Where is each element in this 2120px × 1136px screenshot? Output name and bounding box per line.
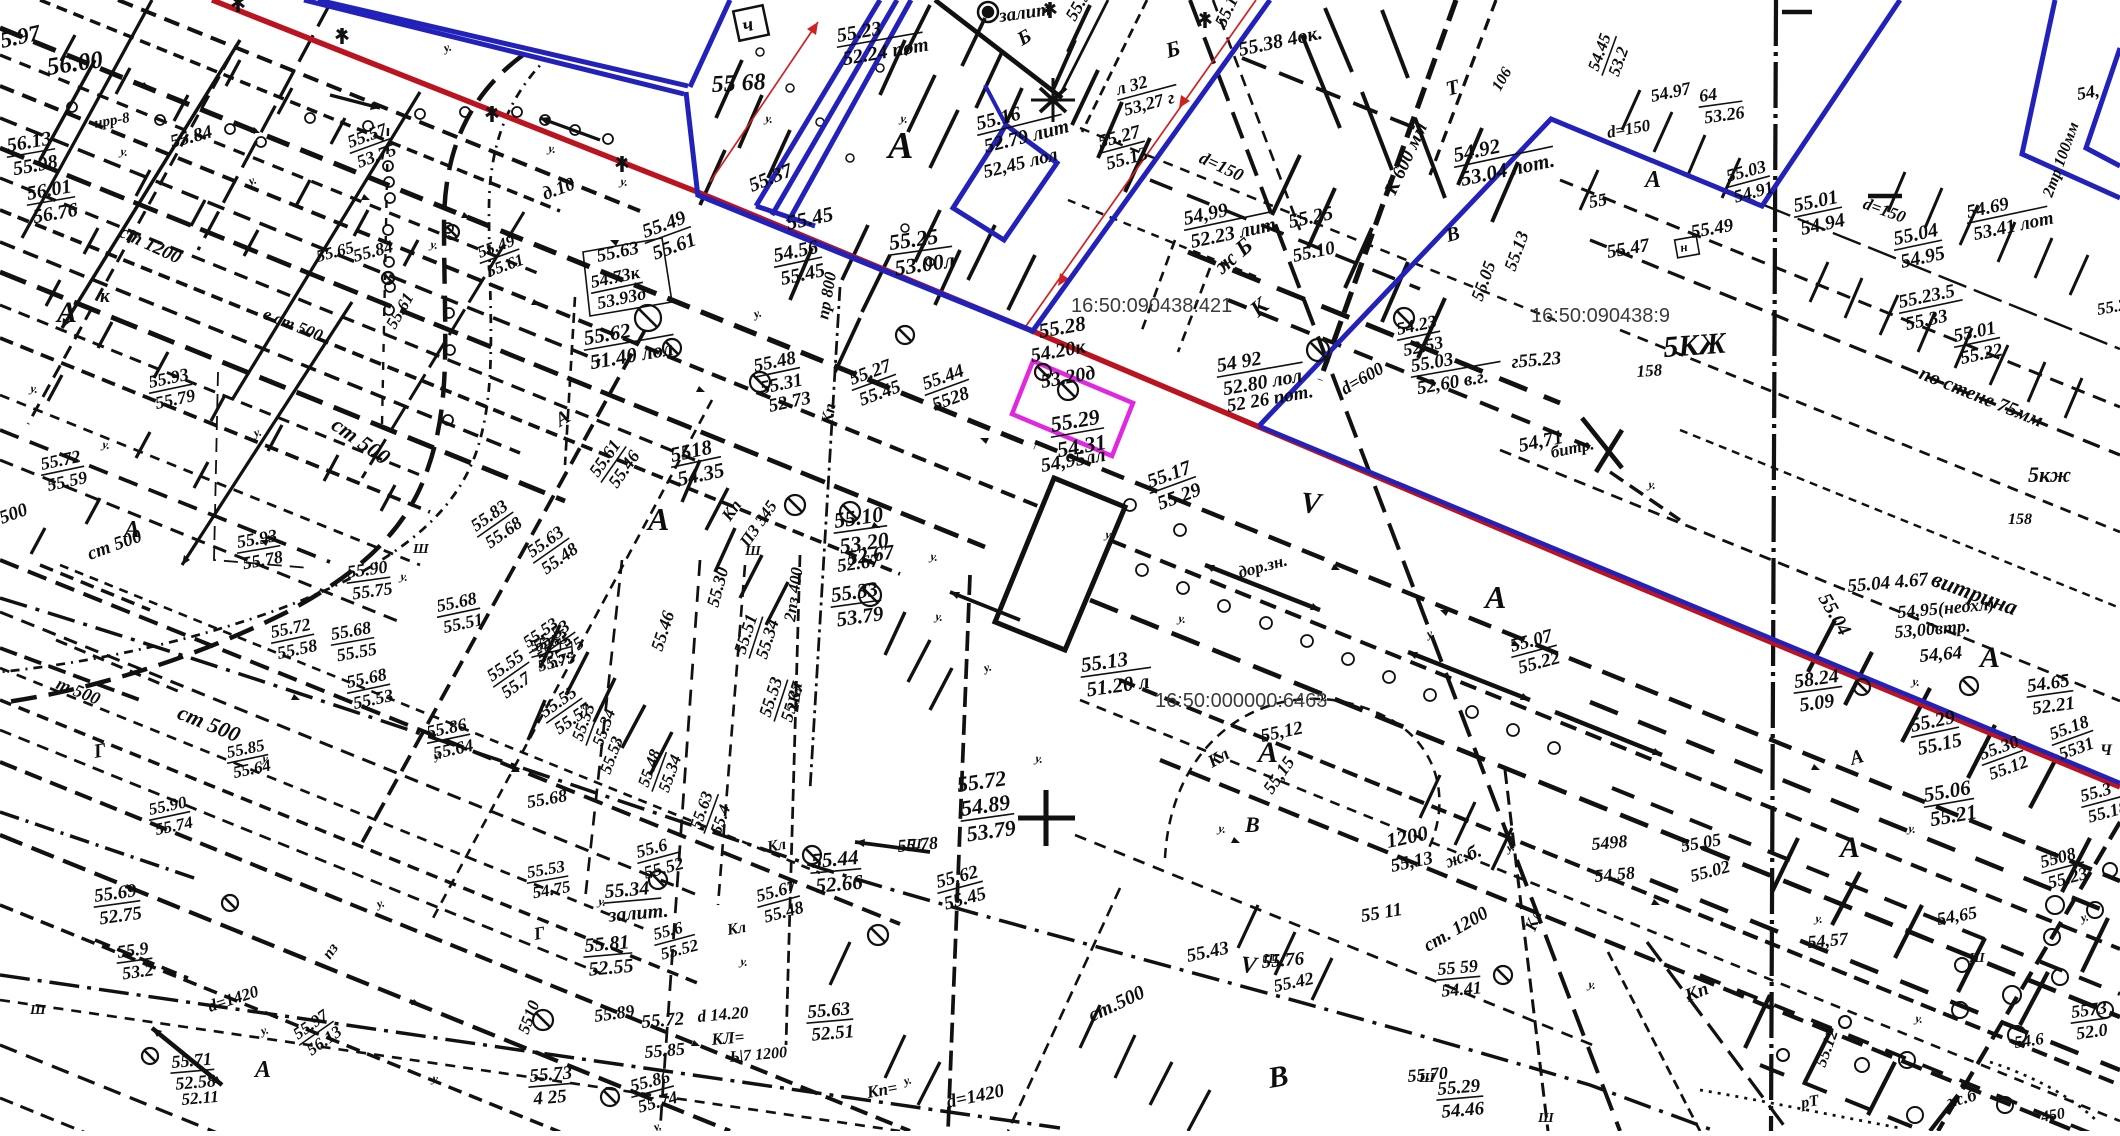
svg-text:А: А — [1643, 167, 1661, 193]
svg-text:54.41: 54.41 — [1441, 977, 1483, 1000]
svg-text:А: А — [1483, 579, 1506, 615]
svg-text:Ш: Ш — [905, 837, 923, 852]
svg-text:Кп: Кп — [817, 402, 840, 427]
svg-text:В: В — [1244, 812, 1260, 837]
svg-text:5498: 5498 — [1591, 831, 1629, 854]
svg-text:Ш: Ш — [412, 542, 430, 557]
svg-text:КЛ=: КЛ= — [710, 1027, 745, 1049]
svg-text:4 25: 4 25 — [532, 1086, 568, 1110]
svg-text:55.85: 55.85 — [644, 1039, 686, 1062]
svg-text:16:50:090438:421: 16:50:090438:421 — [1071, 295, 1232, 317]
svg-text:5кж: 5кж — [2028, 462, 2071, 487]
svg-text:А: А — [55, 296, 77, 329]
svg-text:Ш: Ш — [29, 1003, 47, 1018]
svg-text:55.71: 55.71 — [171, 1049, 213, 1072]
svg-text:А: А — [1838, 831, 1860, 864]
svg-text:Ш: Ш — [744, 544, 762, 559]
svg-text:54,64: 54,64 — [1919, 642, 1963, 667]
svg-text:к: к — [100, 286, 111, 307]
svg-text:г55.23: г55.23 — [1511, 348, 1562, 373]
svg-text:54.58: 54.58 — [1594, 863, 1636, 886]
svg-text:64: 64 — [1698, 84, 1719, 106]
svg-text:Ш: Ш — [1418, 1071, 1436, 1086]
svg-text:16:50:090438:9: 16:50:090438:9 — [1531, 305, 1670, 327]
svg-text:А: А — [122, 517, 140, 543]
svg-text:52.55: 52.55 — [588, 955, 635, 981]
svg-text:55 59: 55 59 — [1437, 956, 1479, 979]
svg-text:Ш: Ш — [1537, 1111, 1555, 1126]
svg-text:55 68: 55 68 — [711, 69, 766, 98]
svg-text:52.51: 52.51 — [811, 1021, 855, 1046]
svg-text:52.66: 52.66 — [815, 870, 865, 898]
svg-text:А: А — [253, 1057, 271, 1083]
svg-text:Ш: Ш — [1968, 951, 1986, 966]
svg-text:16:50:000000:6463: 16:50:000000:6463 — [1155, 690, 1327, 712]
svg-text:54,: 54, — [2075, 80, 2101, 104]
svg-text:А: А — [1256, 736, 1278, 769]
svg-text:55.72: 55.72 — [641, 1008, 686, 1033]
svg-text:5КЖ: 5КЖ — [1662, 327, 1728, 364]
svg-text:А: А — [646, 501, 669, 537]
svg-text:Кл: Кл — [765, 836, 788, 856]
svg-text:54.46: 54.46 — [1441, 1098, 1486, 1123]
svg-text:Ш: Ш — [1262, 952, 1280, 967]
svg-text:Кл: Кл — [725, 919, 748, 939]
svg-text:А: А — [1978, 641, 2000, 674]
svg-text:54,57: 54,57 — [1807, 928, 1850, 952]
svg-text:Ч: Ч — [2100, 742, 2113, 759]
svg-text:55: 55 — [1587, 189, 1608, 212]
svg-text:А: А — [886, 125, 913, 167]
svg-text:52.11: 52.11 — [181, 1087, 220, 1109]
svg-text:158: 158 — [2008, 511, 2032, 528]
svg-text:158: 158 — [1636, 360, 1663, 381]
